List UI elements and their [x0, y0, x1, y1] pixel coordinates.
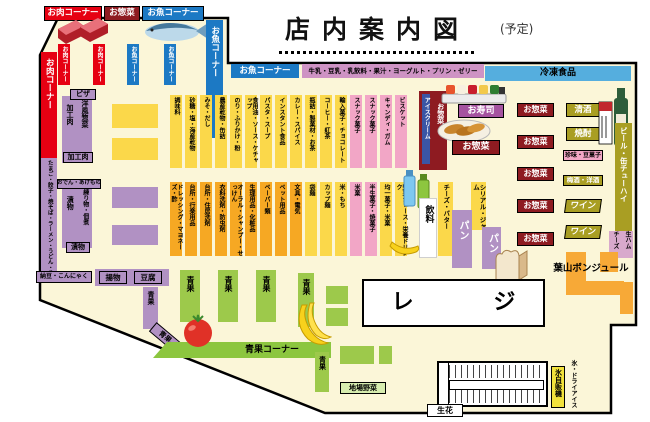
aisle-column: 台所・行楽用品: [185, 182, 197, 256]
aisle-column: 袋麺: [305, 182, 317, 256]
tomato-icon: [180, 313, 216, 349]
label-processed-meat: 加工肉: [63, 152, 93, 163]
beer-chuhai-wall: ビール・缶チューハイ: [615, 123, 632, 231]
label-fresh-flowers: 生花: [427, 404, 463, 417]
label-plum-western-liquor: 梅酒・洋酒: [563, 175, 603, 186]
aisle-column: インスタント食品: [275, 95, 287, 168]
aisle-column: 米菓: [350, 182, 362, 256]
bakery-shelf: [620, 282, 633, 314]
label-ice-dry-ice: 氷・ドライアイス: [567, 360, 579, 410]
aisle-drinks: 飲料: [419, 198, 437, 258]
produce-column: 青果: [256, 270, 276, 322]
aisle-column-fish: お魚コーナー: [127, 44, 139, 85]
aisle-column: 調味料: [170, 95, 182, 168]
label-deli: お惣菜: [517, 232, 554, 246]
label-deli: お惣菜: [517, 167, 554, 181]
aisle-column: 衣料洗剤・防虫剤: [215, 182, 227, 256]
shelf-block: [112, 104, 158, 128]
label-deli: お惣菜: [517, 135, 554, 149]
aisle-column: キャンディ・ガム: [380, 95, 392, 168]
aisle-column: 生理用品・化粧品: [245, 182, 257, 256]
aisle-column: ビスケット: [395, 95, 407, 168]
label-local-vegetables: 地場野菜: [340, 382, 386, 394]
sushi-plate-icon: [438, 74, 512, 108]
label-deli: お惣菜: [517, 103, 554, 117]
shelf-block: [112, 225, 158, 245]
aisle-column: みそ・だし: [200, 95, 212, 168]
label-delicacy-snacks: 珍味・豆菓子: [563, 150, 603, 161]
aisle-column: ペット用品: [275, 182, 287, 256]
aisle-column: ペーパー類: [260, 182, 272, 256]
aisle-cereal-jam: シリアル・ジャム: [471, 182, 486, 230]
aisle-column: 米・もち: [335, 182, 347, 256]
meat-corner-wall: お肉コーナー: [41, 52, 57, 158]
aisle-column: 瓶詰・製菓材・お茶: [305, 95, 317, 168]
label-oden: おでん・あげもの: [57, 179, 101, 189]
page-title: 店内案内図: [279, 10, 474, 54]
aisle-bread: パン: [452, 210, 472, 268]
produce-block: [340, 346, 374, 364]
band-fish-corner: お魚コーナー: [231, 64, 299, 78]
label-pickles: 漬物: [66, 242, 90, 253]
ice-vending-machine: 氷自販機: [551, 366, 565, 408]
meat-icon: [56, 15, 112, 47]
aisle-column: 半生菓子・焼菓子: [365, 182, 377, 256]
shelf-block: [112, 187, 158, 208]
aisle-column-fish: お魚コーナー: [164, 44, 176, 85]
label-natto-konnyaku: 納豆・こんにゃく: [36, 271, 92, 283]
aisle-column: カップ麺: [320, 182, 332, 256]
aisle-column: 農産乾物・缶詰: [215, 95, 227, 168]
label-deli: お惣菜: [517, 199, 554, 213]
produce-strip: 青果: [315, 352, 329, 392]
bakery-shelf: [566, 281, 624, 295]
noodle-egg-wall: たまご・餃子・焼そば・ラーメン・うどん・そば: [41, 158, 57, 276]
aisle-column: 食用油・ソース・ケチャップ: [245, 95, 257, 168]
label-tofu: 豆腐: [134, 271, 162, 284]
label-sake: 清酒: [566, 103, 600, 117]
aisle-column: カレー・スパイス: [290, 95, 302, 168]
label-fried-food: 揚物: [99, 271, 127, 284]
aisle-column: ドレッシング・マヨネーズ・酢: [170, 182, 182, 256]
aisle-column: スナック菓子: [350, 95, 362, 168]
aisle-column: 台所・住居洗剤: [200, 182, 212, 256]
tuna-fish-icon: [142, 16, 212, 44]
label-pizza: ピザ: [70, 89, 96, 100]
aisle-column: コーヒー・紅茶: [320, 95, 332, 168]
title-note: (予定): [500, 20, 533, 37]
aisle-column: スナック菓子: [365, 95, 377, 168]
banana-icon: [292, 301, 332, 349]
label-wine: ワイン: [564, 199, 602, 213]
checkout-lanes: [437, 361, 548, 407]
aisle-cheese-butter: チーズ・バター: [438, 182, 453, 256]
banana-icon: [388, 238, 420, 260]
aisle-pickles: 漬物 練り物・佃煮: [62, 186, 92, 248]
label-wine: ワイン: [564, 225, 602, 239]
label-shochu: 焼酎: [566, 127, 600, 141]
shelf-block: [112, 138, 158, 160]
aisle-column: 輸入菓子・チョコレート: [335, 95, 347, 168]
aisle-column: のり・ふりかけ・粉: [230, 95, 242, 168]
aisle-column-meat: お肉コーナー: [93, 44, 105, 85]
produce-column: 青果: [218, 270, 238, 322]
aisle-column: オーラル・シャンプー・せっけん: [230, 182, 242, 256]
aisle-column: 文具・電気: [290, 182, 302, 256]
label-deli: お惣菜: [452, 140, 500, 155]
aisle-column-meat: お肉コーナー: [58, 44, 70, 85]
aisle-column: パスタ・スープ: [260, 95, 272, 168]
label-bakery-name: 葉山ボンジュール: [546, 262, 636, 275]
register-counter: レ ジ: [362, 279, 545, 327]
produce-block: [379, 346, 392, 364]
aisle-column: 砂糖・塩・海産乾物: [185, 95, 197, 168]
